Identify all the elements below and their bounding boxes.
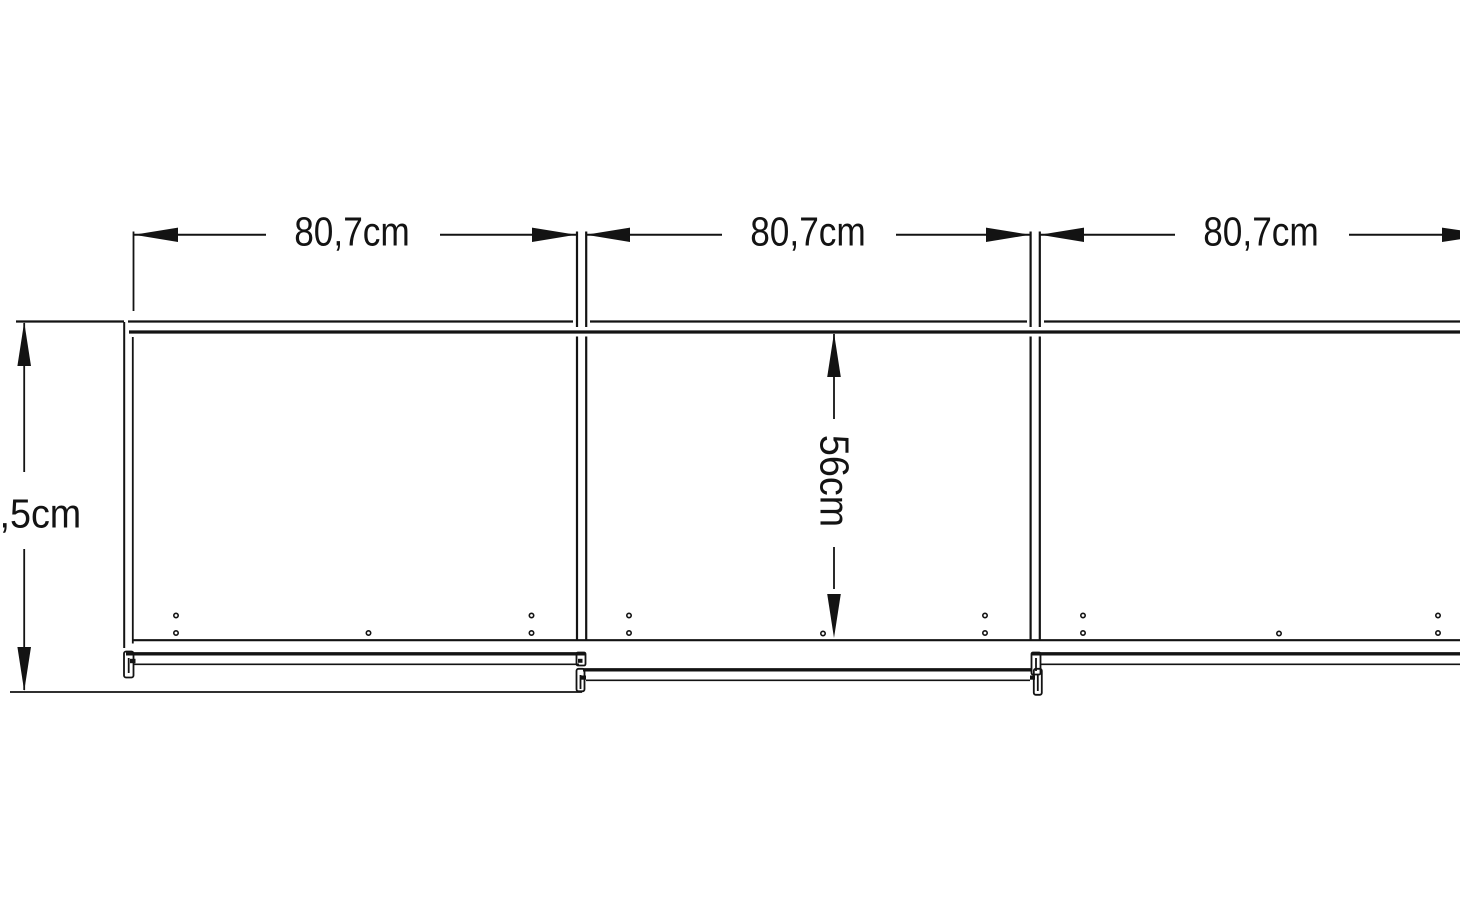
svg-text:80,7cm: 80,7cm [294,209,410,255]
svg-text:80,7cm: 80,7cm [750,209,866,255]
svg-text:56cm: 56cm [811,435,857,527]
svg-text:,5cm: ,5cm [0,491,81,537]
svg-text:80,7cm: 80,7cm [1203,209,1319,255]
